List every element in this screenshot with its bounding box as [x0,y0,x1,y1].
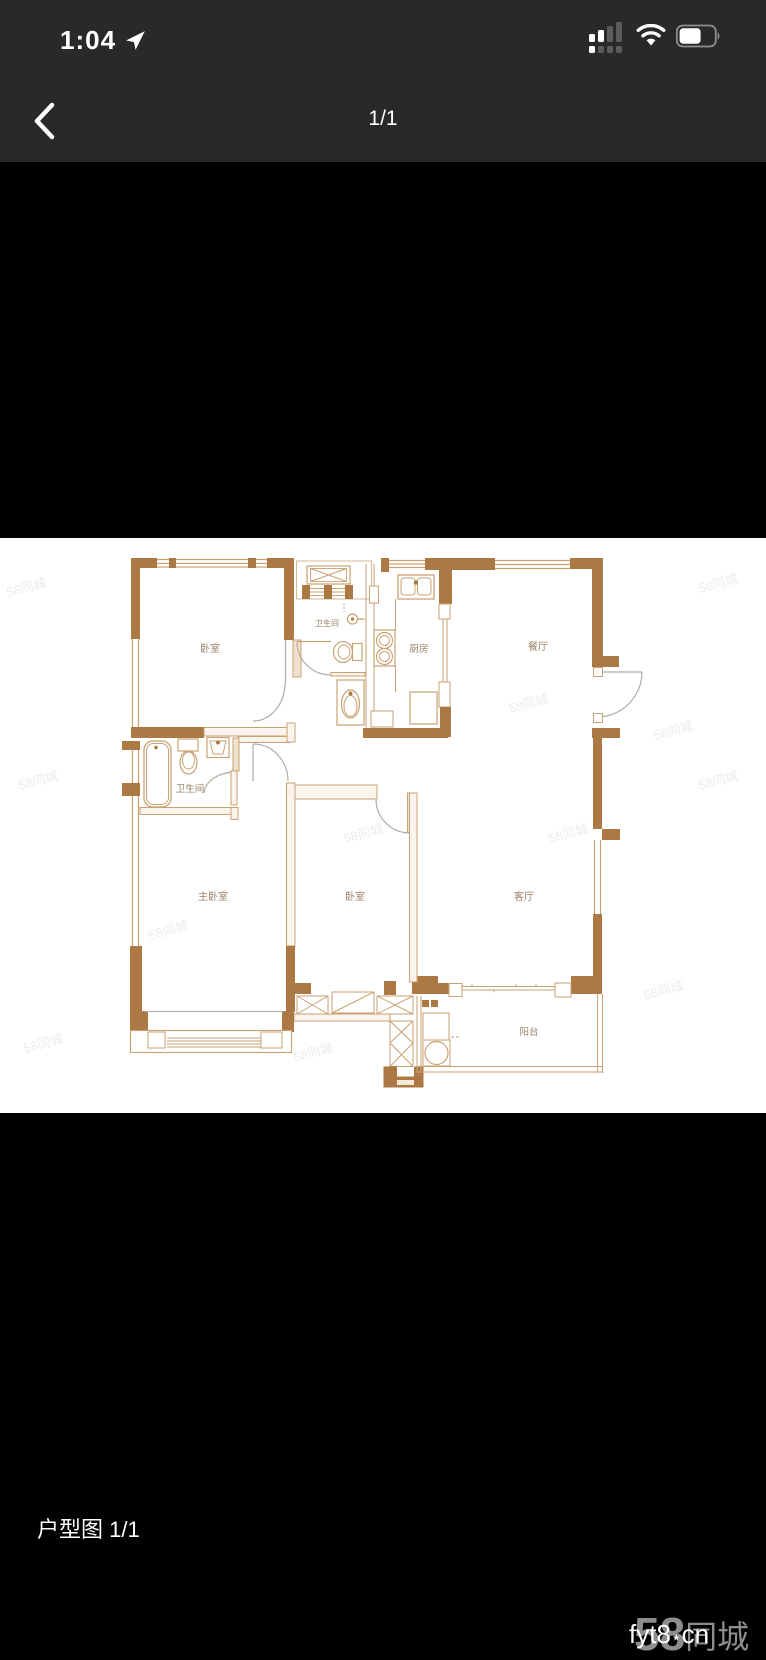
svg-text:58同城: 58同城 [652,718,695,743]
svg-text:58同城: 58同城 [292,1040,335,1065]
svg-text:58同城: 58同城 [22,1031,65,1056]
svg-text:58同城: 58同城 [147,918,190,943]
svg-text:58同城: 58同城 [547,821,590,846]
svg-text:卫生间: 卫生间 [176,783,205,795]
svg-text:58同城: 58同城 [642,978,685,1003]
svg-text:58同城: 58同城 [697,571,740,596]
svg-text:58同城: 58同城 [342,821,385,846]
svg-text:卧室: 卧室 [345,890,365,903]
svg-text:58同城: 58同城 [5,575,48,600]
svg-text:58同城: 58同城 [17,768,60,793]
svg-text:主卧室: 主卧室 [198,890,228,903]
svg-text:厨房: 厨房 [409,643,428,655]
svg-text:58同城: 58同城 [697,768,740,793]
svg-text:餐厅: 餐厅 [528,640,548,653]
svg-text:卧室: 卧室 [200,642,220,655]
svg-text:阳台: 阳台 [519,1026,538,1038]
svg-text:卫生间: 卫生间 [315,618,339,628]
svg-text:客厅: 客厅 [514,890,534,903]
svg-text:58同城: 58同城 [507,691,550,716]
